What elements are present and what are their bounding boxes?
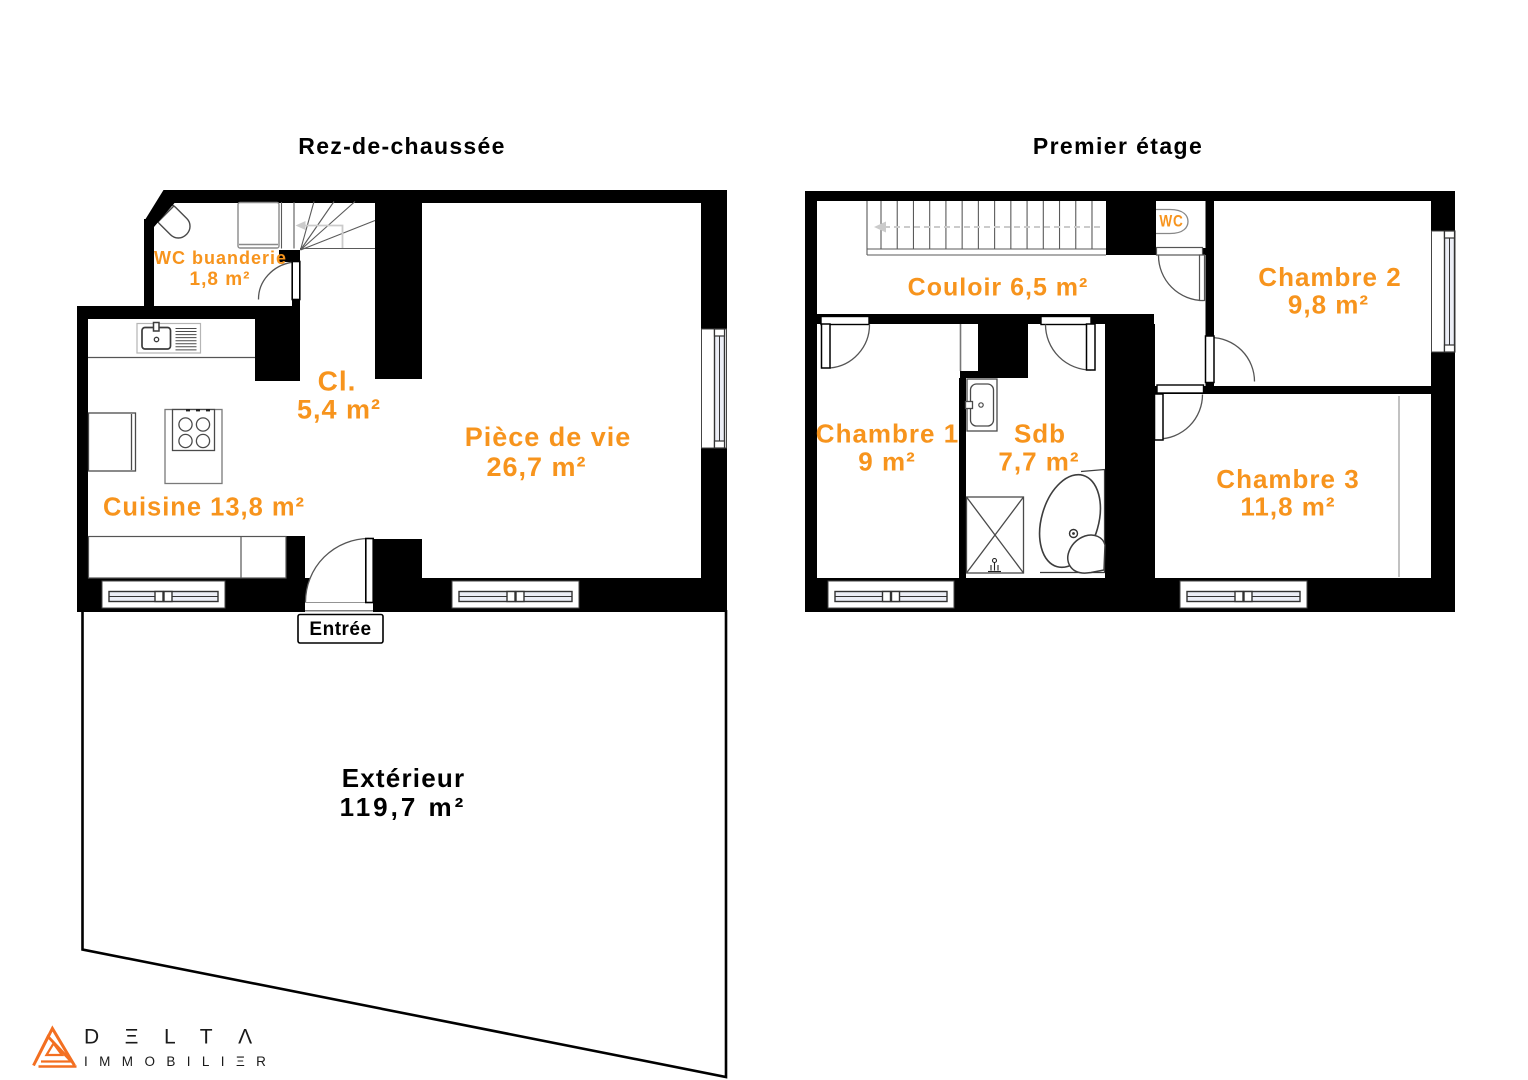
svg-text:Premier étage: Premier étage	[1033, 133, 1203, 159]
svg-text:119,7 m²: 119,7 m²	[340, 792, 467, 822]
svg-text:WC buanderie: WC buanderie	[154, 248, 287, 268]
svg-text:Chambre 1: Chambre 1	[816, 419, 959, 449]
svg-text:Sdb: Sdb	[1014, 419, 1066, 449]
svg-text:Chambre 2: Chambre 2	[1258, 262, 1401, 292]
svg-text:WC: WC	[1159, 212, 1183, 231]
svg-text:7,7 m²: 7,7 m²	[998, 447, 1079, 477]
svg-text:Cuisine 13,8 m²: Cuisine 13,8 m²	[103, 493, 305, 521]
svg-text:Pièce de vie: Pièce de vie	[465, 422, 632, 452]
svg-text:5,4 m²: 5,4 m²	[297, 394, 381, 424]
svg-text:Rez-de-chaussée: Rez-de-chaussée	[298, 133, 505, 159]
svg-text:9,8 m²: 9,8 m²	[1288, 290, 1369, 320]
svg-text:IMMOΒILIΞR: IMMOΒILIΞR	[84, 1054, 277, 1069]
svg-text:Couloir 6,5 m²: Couloir 6,5 m²	[908, 273, 1089, 301]
svg-text:26,7 m²: 26,7 m²	[486, 452, 586, 482]
svg-text:1,8 m²: 1,8 m²	[190, 269, 251, 290]
svg-text:DΞLTΛ: DΞLTΛ	[84, 1026, 278, 1049]
svg-text:9 m²: 9 m²	[858, 447, 915, 477]
svg-text:Entrée: Entrée	[309, 619, 371, 640]
svg-text:11,8 m²: 11,8 m²	[1240, 492, 1335, 522]
svg-text:Cl.: Cl.	[318, 365, 357, 396]
svg-text:Chambre 3: Chambre 3	[1216, 464, 1359, 494]
svg-text:Extérieur: Extérieur	[342, 763, 466, 793]
